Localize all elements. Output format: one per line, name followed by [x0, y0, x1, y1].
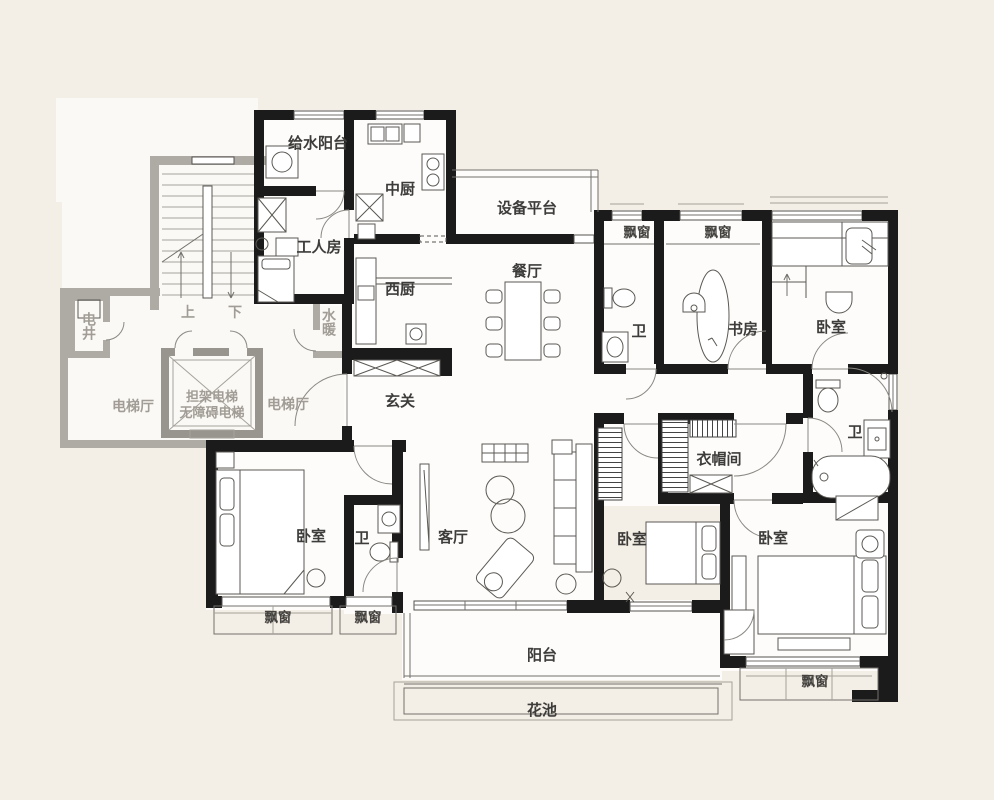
fridge — [404, 124, 420, 142]
sw-toilet — [370, 542, 398, 562]
room-label-equipment-platform: 设备平台 — [497, 199, 557, 217]
ne-chair — [826, 292, 852, 313]
foyer-closet — [354, 360, 440, 376]
floor-plan-drawing: 给水阳台 中厨 设备平台 工人房 西厨 餐厅 飘窗 飘窗 卫 书房 卧室 卫 衣… — [0, 0, 994, 800]
tv-cabinet — [420, 464, 429, 550]
study-desk — [697, 270, 729, 362]
common-wall — [60, 440, 214, 448]
room-label-bay-window-5: 飘窗 — [802, 673, 829, 689]
ac-vent — [482, 444, 528, 462]
room-label-guest-bath: 卫 — [631, 323, 646, 340]
sw-corner-wardrobe — [724, 610, 754, 654]
master-toilet — [816, 380, 840, 412]
wardrobe-rack — [598, 428, 622, 500]
floor-plan-page: 给水阳台 中厨 设备平台 工人房 西厨 餐厅 飘窗 飘窗 卫 书房 卧室 卫 衣… — [0, 0, 994, 800]
worker-desk — [276, 238, 298, 256]
west-counter — [356, 258, 376, 344]
study-chair — [683, 293, 705, 312]
room-label-balcony: 阳台 — [527, 646, 557, 664]
room-label-flower-bed: 花池 — [527, 701, 557, 719]
sw-vanity — [378, 505, 400, 533]
master-bed — [758, 556, 886, 634]
bathtub — [812, 456, 890, 498]
side-table — [603, 569, 621, 587]
room-label-elevator-hall-right: 电梯厅 — [267, 396, 309, 412]
worker-bed — [258, 256, 294, 302]
room-label-bedroom-s: 卧室 — [617, 530, 647, 548]
room-label-bedroom-master: 卧室 — [758, 529, 788, 547]
room-label-bedroom-sw: 卧室 — [296, 527, 326, 545]
sofa — [552, 440, 592, 572]
wardrobe-rack — [662, 420, 688, 492]
microwave — [358, 286, 374, 300]
stair-label-down: 下 — [228, 304, 242, 320]
stove — [422, 154, 444, 190]
master-vanity — [864, 420, 890, 458]
guest-vanity — [602, 332, 628, 362]
room-label-bay-window-4: 飘窗 — [355, 609, 382, 625]
dining-table — [486, 282, 560, 360]
room-label-cloakroom: 衣帽间 — [696, 450, 741, 468]
room-label-water-heating: 水暖 — [321, 307, 337, 337]
common-wall — [60, 288, 68, 448]
lounge-chair — [856, 530, 884, 558]
room-label-bedroom-ne: 卧室 — [816, 318, 846, 336]
stair-label-up: 上 — [181, 304, 195, 320]
room-label-bay-window-3: 飘窗 — [265, 609, 292, 625]
label-accessible-elevator: 无障碍电梯 — [178, 405, 244, 420]
bed-south — [646, 522, 720, 584]
guest-toilet — [604, 288, 635, 308]
ne-bedroom-desk — [772, 222, 888, 266]
bed-bench — [778, 638, 850, 650]
tv-cabinet-master — [732, 556, 746, 618]
room-label-foyer: 玄关 — [385, 392, 415, 410]
wardrobe-rack — [690, 420, 736, 437]
room-label-chinese-kitchen: 中厨 — [385, 180, 415, 198]
nightstand — [216, 452, 234, 468]
room-label-study: 书房 — [728, 320, 758, 338]
room-label-bath-sw: 卫 — [354, 530, 369, 547]
room-label-dining: 餐厅 — [512, 262, 542, 280]
island-sink — [406, 324, 426, 344]
flower-bed-box — [404, 688, 718, 714]
kitchen-sink — [368, 124, 402, 144]
room-label-bay-window-1: 飘窗 — [624, 224, 651, 240]
room-label-western-kitchen: 西厨 — [385, 281, 415, 298]
small-appliance — [358, 224, 375, 239]
label-stretcher-elevator: 担架电梯 — [186, 389, 238, 404]
room-label-living: 客厅 — [437, 528, 468, 546]
room-label-water-balcony: 给水阳台 — [288, 134, 348, 152]
room-label-bay-window-2: 飘窗 — [705, 224, 732, 240]
dresser — [836, 496, 878, 520]
room-label-electrical-shaft: 电井 — [81, 311, 97, 341]
room-label-elevator-hall-left: 电梯厅 — [112, 398, 154, 414]
bed-sw — [216, 470, 304, 594]
room-label-worker-room: 工人房 — [296, 238, 341, 256]
room-label-master-bath: 卫 — [847, 424, 862, 441]
